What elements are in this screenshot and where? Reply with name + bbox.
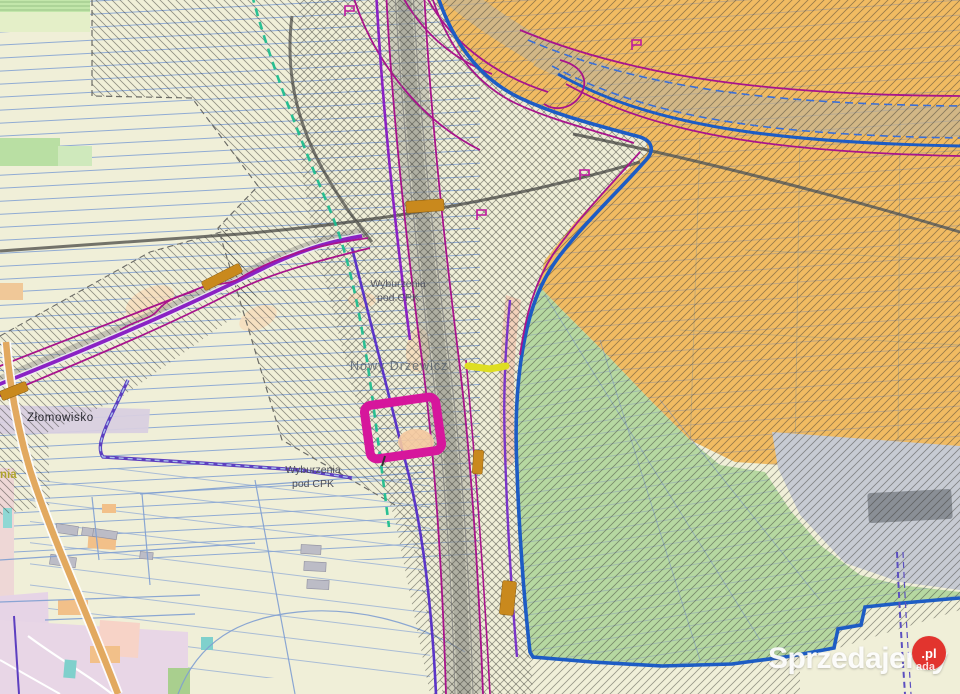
map-graphics xyxy=(0,0,960,694)
watermark: Sprzedajemy .pl ada xyxy=(764,634,956,686)
map-canvas[interactable]: Złomowisko Wyburzenia pod CPK Wyburzenia… xyxy=(0,0,960,694)
yellow-road-segment xyxy=(468,366,506,369)
watermark-suffix: ada xyxy=(916,661,935,673)
